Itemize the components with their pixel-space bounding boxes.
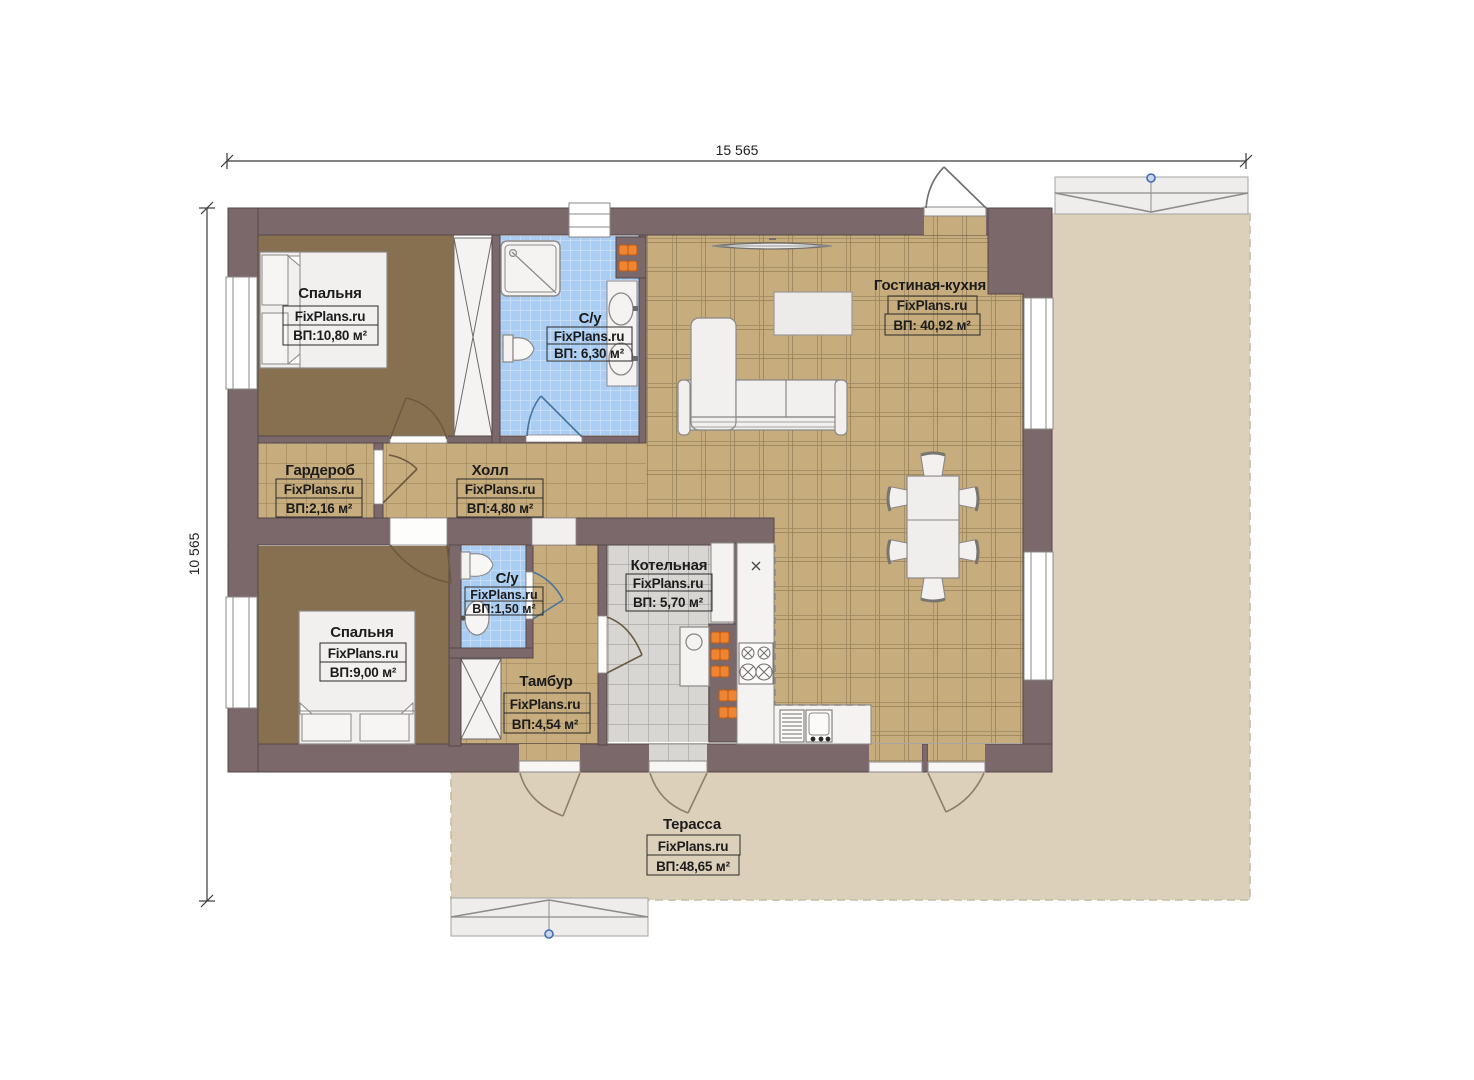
svg-text:ВП:10,80 м²: ВП:10,80 м²	[293, 328, 367, 343]
svg-text:FixPlans.ru: FixPlans.ru	[510, 697, 581, 712]
svg-text:FixPlans.ru: FixPlans.ru	[295, 309, 366, 324]
svg-text:ВП:48,65 м²: ВП:48,65 м²	[656, 859, 730, 874]
svg-text:15 565: 15 565	[716, 142, 759, 158]
svg-text:Тамбур: Тамбур	[519, 673, 572, 690]
svg-text:Холл: Холл	[472, 462, 509, 479]
svg-text:FixPlans.ru: FixPlans.ru	[658, 839, 729, 854]
svg-text:ВП: 40,92 м²: ВП: 40,92 м²	[893, 318, 971, 333]
svg-text:Спальня: Спальня	[330, 624, 393, 641]
svg-text:FixPlans.ru: FixPlans.ru	[470, 588, 537, 602]
svg-text:ВП:4,54 м²: ВП:4,54 м²	[512, 717, 579, 732]
svg-text:С/у: С/у	[579, 310, 603, 327]
svg-text:ВП: 6,30 м²: ВП: 6,30 м²	[554, 346, 625, 361]
svg-text:Котельная: Котельная	[631, 557, 708, 574]
svg-text:FixPlans.ru: FixPlans.ru	[284, 482, 355, 497]
svg-text:ВП:2,16 м²: ВП:2,16 м²	[286, 501, 353, 516]
svg-text:Гостиная-кухня: Гостиная-кухня	[874, 277, 986, 294]
svg-text:ВП:1,50 м²: ВП:1,50 м²	[472, 602, 535, 616]
svg-text:FixPlans.ru: FixPlans.ru	[554, 329, 625, 344]
svg-text:Терасса: Терасса	[663, 816, 722, 833]
svg-text:С/у: С/у	[496, 570, 520, 587]
svg-text:FixPlans.ru: FixPlans.ru	[633, 576, 704, 591]
svg-text:ВП:9,00 м²: ВП:9,00 м²	[330, 665, 397, 680]
svg-text:Гардероб: Гардероб	[285, 462, 354, 479]
svg-text:Спальня: Спальня	[298, 285, 361, 302]
svg-text:FixPlans.ru: FixPlans.ru	[897, 298, 968, 313]
svg-text:FixPlans.ru: FixPlans.ru	[328, 646, 399, 661]
svg-text:FixPlans.ru: FixPlans.ru	[465, 482, 536, 497]
svg-text:ВП: 5,70 м²: ВП: 5,70 м²	[633, 595, 704, 610]
svg-text:10 565: 10 565	[186, 532, 202, 575]
svg-text:ВП:4,80 м²: ВП:4,80 м²	[467, 501, 534, 516]
